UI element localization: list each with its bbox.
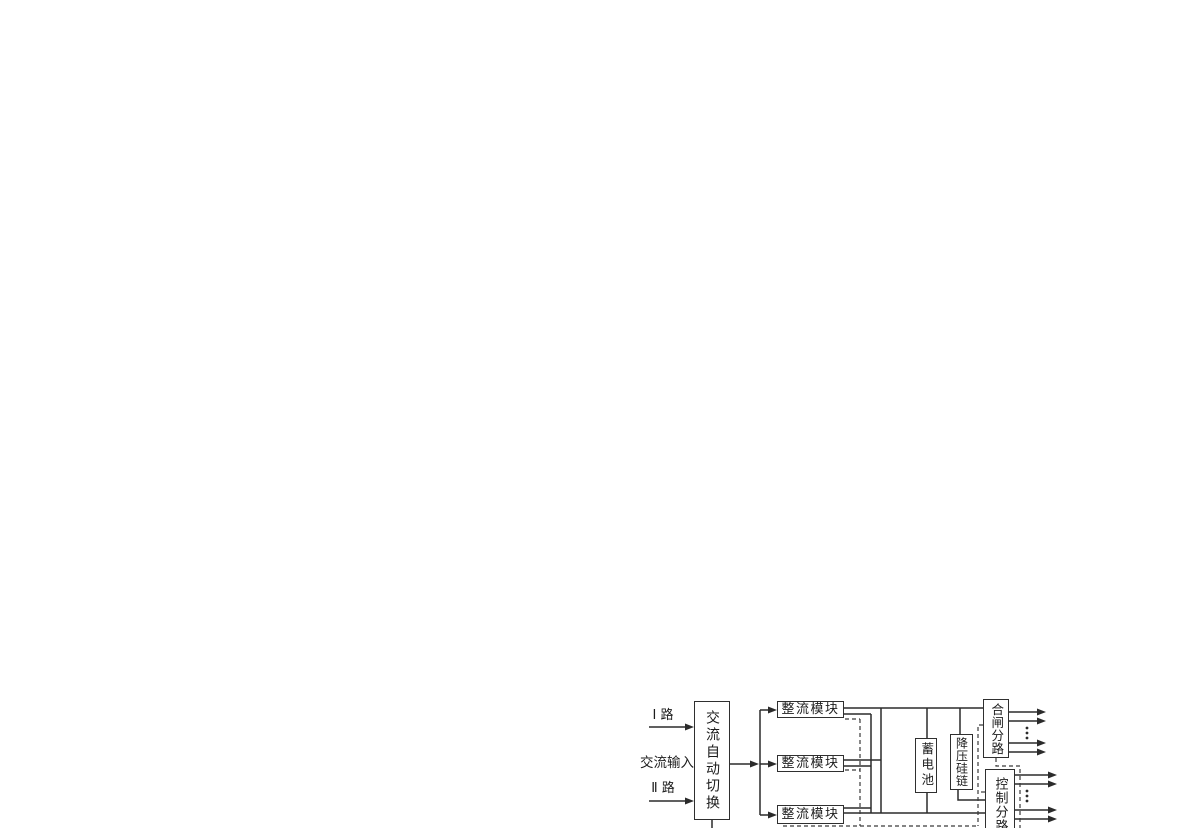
control-branch-ellipsis-dots	[1026, 790, 1029, 803]
arrow-closing-out-1	[1009, 709, 1046, 716]
arrow-to-rectifier-1	[760, 707, 777, 714]
silicon-chain-bottom-link	[958, 790, 985, 800]
label-route-ii: Ⅱ 路	[640, 782, 686, 796]
closing-branch-box: 合闸分路	[983, 699, 1009, 758]
label-route-i: Ⅰ 路	[640, 709, 686, 723]
battery-box: 蓄电池	[915, 738, 937, 793]
voltage-drop-silicon-chain-box: 降压硅链	[950, 734, 973, 790]
rectifier-module-2-box: 整流模块	[777, 755, 844, 772]
arrow-control-out-3	[1015, 807, 1057, 814]
rectifier-module-1-label: 整流模块	[781, 703, 839, 716]
rectifier-module-3-box: 整流模块	[777, 805, 844, 824]
arrow-to-rectifier-3	[760, 812, 777, 819]
control-branch-label: 控制分路	[994, 777, 1007, 828]
ac-auto-switch-box: 交流自动切换	[694, 701, 730, 820]
battery-label: 蓄电池	[920, 742, 933, 789]
ac-auto-switch-label: 交流自动切换	[705, 710, 719, 812]
arrow-closing-out-2	[1009, 718, 1046, 725]
arrow-closing-out-4	[1009, 749, 1046, 756]
rectifier-module-3-label: 整流模块	[781, 808, 839, 821]
rectifier-module-2-label: 整流模块	[781, 757, 839, 770]
arrow-control-out-4	[1015, 816, 1057, 823]
closing-branch-label: 合闸分路	[990, 703, 1003, 755]
arrow-switch-output	[730, 761, 759, 768]
label-ac-input: 交流输入	[637, 756, 697, 771]
arrow-control-out-1	[1015, 772, 1057, 779]
closing-branch-ellipsis-dots	[1026, 727, 1029, 740]
voltage-drop-silicon-chain-label: 降压硅链	[956, 737, 968, 787]
arrow-to-rectifier-2	[760, 761, 777, 768]
arrow-closing-out-3	[1009, 740, 1046, 747]
control-branch-box: 控制分路	[985, 769, 1015, 828]
arrow-route-i-input	[649, 724, 694, 731]
arrow-control-out-2	[1015, 781, 1057, 788]
page: Ⅰ 路 交流输入 Ⅱ 路 交流自动切换 整流模块 整流模块 整流模块 蓄电池 降…	[0, 0, 1200, 828]
rectifier-module-1-box: 整流模块	[777, 701, 844, 718]
arrow-route-ii-input	[649, 798, 694, 805]
diagram-wiring	[0, 0, 1200, 828]
